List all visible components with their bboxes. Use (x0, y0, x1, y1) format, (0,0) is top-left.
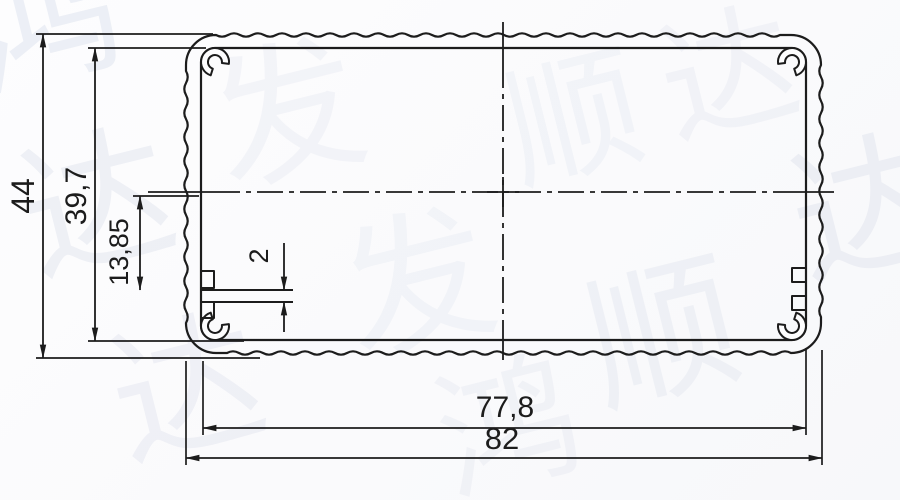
corner-screw-boss-top-right (778, 48, 806, 75)
dim-rib-thickness: 2 (244, 243, 284, 332)
drawing-canvas: 鸿达发顺达达发顺达鸿 (0, 0, 900, 500)
watermark-character: 顺 (569, 235, 755, 434)
watermark-character: 发 (194, 15, 380, 214)
dim-label-overall-width: 82 (485, 421, 519, 456)
dim-label-rib-offset: 13,85 (104, 218, 134, 286)
corner-screw-boss-top-left (201, 48, 229, 75)
center-cross (487, 177, 519, 207)
dim-inner-height: 39,7 (60, 48, 244, 341)
right-wall-rib-upper (792, 268, 806, 282)
dim-label-inner-height: 39,7 (60, 167, 93, 225)
corner-screw-boss-bottom-left (201, 313, 229, 340)
corner-screw-boss-bottom-right (778, 313, 806, 340)
dim-label-rib-thickness: 2 (244, 248, 274, 263)
centerlines (148, 22, 834, 360)
watermark-character: 达 (774, 110, 900, 309)
right-wall-rib-lower (792, 296, 806, 310)
watermark-character: 鸿 (0, 0, 136, 119)
dim-label-inner-width: 77,8 (476, 391, 534, 424)
dim-overall-height: 44 (5, 34, 260, 358)
watermark-character: 顺 (490, 30, 658, 209)
dimensions: 44 39,7 13,85 2 77 (5, 34, 822, 465)
left-wall-rib-upper (201, 271, 214, 288)
extrusion-profile-drawing: 鸿达发顺达达发顺达鸿 (0, 0, 900, 500)
watermark-layer: 鸿达发顺达达发顺达鸿 (0, 0, 900, 500)
dim-label-overall-height: 44 (5, 178, 41, 214)
watermark-character: 达 (645, 0, 813, 164)
